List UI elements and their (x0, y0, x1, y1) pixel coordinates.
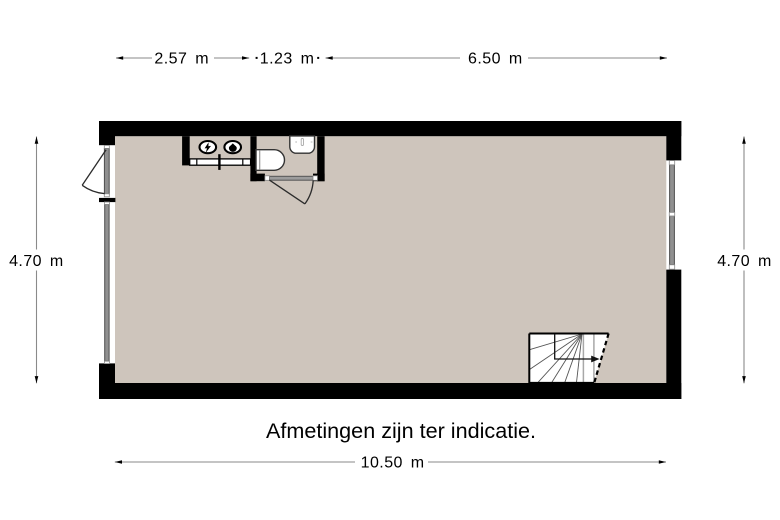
svg-text:6.50 m: 6.50 m (468, 50, 523, 67)
svg-text:4.70 m: 4.70 m (9, 253, 64, 270)
svg-text:Afmetingen zijn ter indicatie.: Afmetingen zijn ter indicatie. (266, 418, 536, 443)
svg-text:10.50 m: 10.50 m (361, 454, 425, 471)
svg-text:2.57 m: 2.57 m (154, 50, 209, 67)
svg-text:1.23 m: 1.23 m (260, 50, 315, 67)
svg-text:4.70 m: 4.70 m (717, 253, 772, 270)
